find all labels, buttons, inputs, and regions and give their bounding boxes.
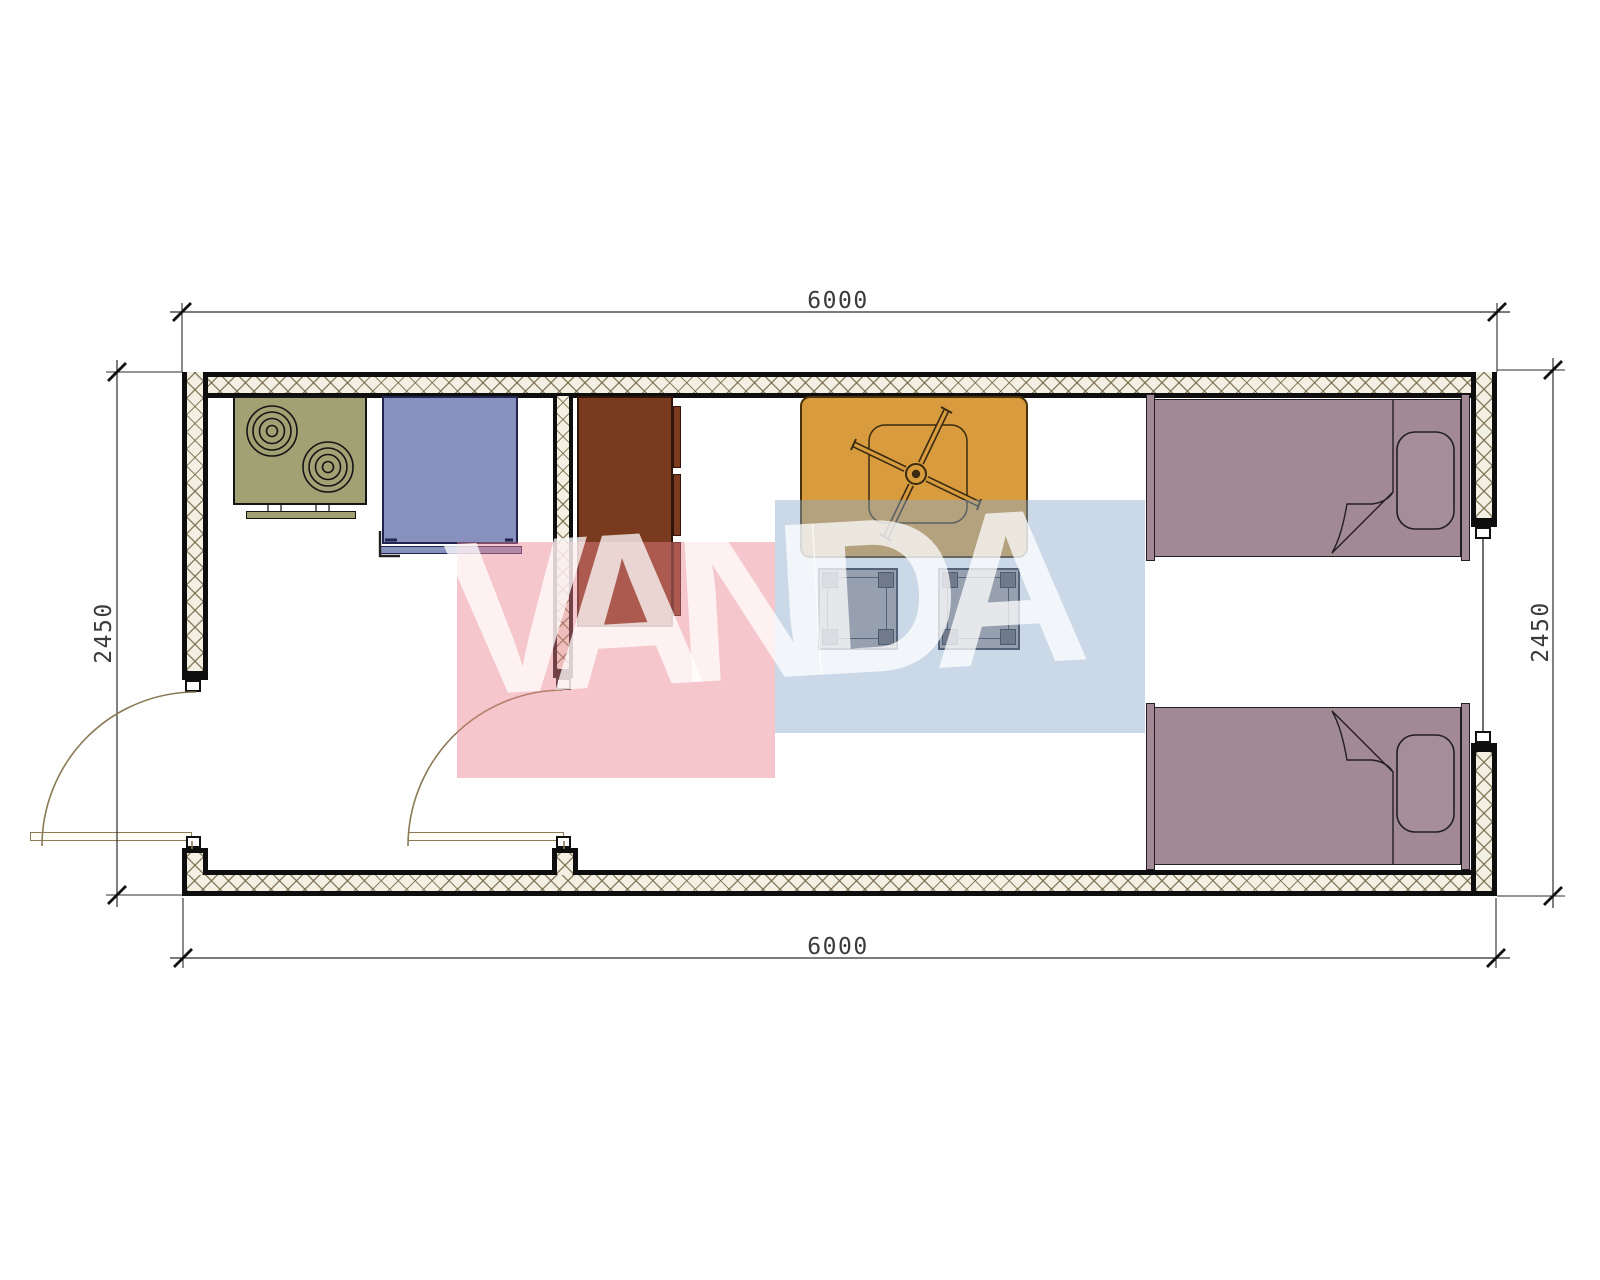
stove-rail-ticks — [268, 505, 329, 511]
dimension-bottom: 6000 — [807, 934, 868, 960]
bed-top-blanket-fold — [1332, 400, 1393, 553]
watermark-text: VANDA — [440, 485, 1062, 720]
exterior-door-arc — [42, 692, 196, 846]
appliance-corner-bracket — [380, 531, 400, 556]
bed-top-pillow — [1397, 432, 1454, 529]
bed-bottom-blanket-fold — [1332, 711, 1393, 864]
stove-burners — [247, 406, 353, 492]
floor-plan: 6000 6000 2450 2450 VANDA — [0, 0, 1600, 1280]
dimension-left: 2450 — [91, 602, 117, 663]
bed-bottom-pillow — [1397, 735, 1454, 832]
dimension-right: 2450 — [1528, 601, 1554, 662]
dimension-top: 6000 — [807, 288, 868, 314]
